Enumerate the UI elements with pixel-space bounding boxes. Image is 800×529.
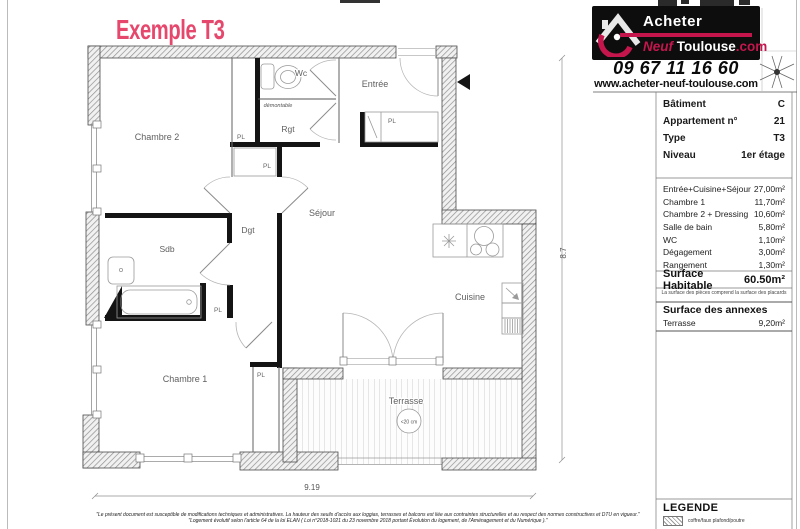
area-label: Salle de bain bbox=[663, 222, 712, 232]
logo-red-bar bbox=[620, 33, 752, 37]
website-url: www.acheter-neuf-toulouse.com bbox=[588, 78, 764, 90]
phone-number: 09 67 11 16 60 bbox=[592, 58, 760, 79]
width-dimension-label: 9.19 bbox=[304, 483, 320, 492]
kitchen-fixtures bbox=[433, 224, 523, 334]
info-value: 21 bbox=[774, 116, 785, 127]
legend-item-label: coffre/faux plafond/poutre bbox=[688, 518, 745, 524]
area-value: 1,30m² bbox=[759, 260, 785, 270]
area-value: 1,10m² bbox=[759, 235, 785, 245]
table-row: Salle de bain 5,80m² bbox=[656, 221, 792, 234]
info-label: Bâtiment bbox=[663, 99, 706, 110]
room-label-wc: Wc bbox=[295, 68, 308, 78]
terrace-note-text: <20 cm bbox=[401, 420, 418, 426]
info-value: C bbox=[778, 99, 785, 110]
closet-label: PL bbox=[388, 118, 396, 125]
compass-icon bbox=[760, 56, 794, 88]
total-value: 60.50m² bbox=[744, 274, 785, 286]
table-row: Bâtiment C bbox=[656, 96, 792, 113]
area-value: 27,00m² bbox=[754, 184, 785, 194]
legend-item: coffre/faux plafond/poutre bbox=[663, 516, 745, 526]
info-label: Type bbox=[663, 133, 686, 144]
area-label: Chambre 1 bbox=[663, 197, 705, 207]
table-row: Entrée+Cuisine+Séjour 27,00m² bbox=[656, 183, 792, 196]
info-value: T3 bbox=[773, 133, 785, 144]
room-label-terrasse: Terrasse bbox=[389, 396, 424, 406]
closet-label: PL bbox=[263, 163, 271, 170]
windows bbox=[92, 121, 242, 462]
table-row: Niveau 1er étage bbox=[656, 147, 792, 164]
logo-text-neuf: Neuf bbox=[643, 39, 673, 54]
terrace-threshold-note: <20 cm bbox=[397, 409, 421, 433]
surface-habitable-row: Surface Habitable 60.50m² bbox=[656, 271, 792, 288]
area-value: 3,00m² bbox=[759, 247, 785, 257]
room-label-sdb: Sdb bbox=[159, 244, 174, 254]
annex-label: Terrasse bbox=[663, 318, 696, 328]
apartment-info-table: Bâtiment C Appartement n° 21 Type T3 Niv… bbox=[656, 96, 792, 164]
room-label-chambre2: Chambre 2 bbox=[135, 132, 180, 142]
closet-label: PL bbox=[257, 372, 265, 379]
room-label-cuisine: Cuisine bbox=[455, 292, 485, 302]
room-label-rgt: Rgt bbox=[281, 124, 295, 134]
room-label-entree: Entrée bbox=[362, 79, 389, 89]
area-label: WC bbox=[663, 235, 677, 245]
area-value: 5,80m² bbox=[759, 222, 785, 232]
room-labels: Chambre 2 Wc Entrée Rgt Dgt Séjour Sdb C… bbox=[135, 68, 485, 406]
area-label: Chambre 2 + Dressing bbox=[663, 209, 748, 219]
table-row: Chambre 1 11,70m² bbox=[656, 196, 792, 209]
logo-text-com: .com bbox=[736, 39, 768, 54]
table-row: Dégagement 3,00m² bbox=[656, 246, 792, 259]
logo-text-line2: Neuf Toulouse.com bbox=[643, 39, 767, 54]
total-label: Surface Habitable bbox=[663, 268, 744, 292]
room-label-dgt: Dgt bbox=[241, 225, 255, 235]
table-row: Terrasse 9,20m² bbox=[656, 318, 792, 328]
annex-value: 9,20m² bbox=[759, 318, 785, 328]
area-label: Dégagement bbox=[663, 247, 712, 257]
annexes-header: Surface des annexes bbox=[656, 304, 792, 316]
room-areas-table: Entrée+Cuisine+Séjour 27,00m² Chambre 1 … bbox=[656, 179, 792, 271]
table-row: WC 1,10m² bbox=[656, 233, 792, 246]
room-label-sejour: Séjour bbox=[309, 208, 335, 218]
area-value: 10,60m² bbox=[754, 209, 785, 219]
closet-label: PL bbox=[237, 134, 245, 141]
disclaimer-line2: "Logement évolutif selon l'article 64 de… bbox=[62, 518, 674, 524]
height-dimension-label: 8.7 bbox=[559, 247, 568, 259]
doors bbox=[200, 49, 443, 366]
washbasin-fixture bbox=[108, 257, 134, 284]
table-row: Type T3 bbox=[656, 130, 792, 147]
logo-text-toulouse: Toulouse bbox=[677, 39, 736, 54]
table-row: Appartement n° 21 bbox=[656, 113, 792, 130]
info-label: Niveau bbox=[663, 150, 696, 161]
table-row: Chambre 2 + Dressing 10,60m² bbox=[656, 208, 792, 221]
bathtub-fixture bbox=[117, 286, 201, 318]
areas-note: La surface des pièces comprend la surfac… bbox=[656, 290, 792, 296]
entrance-arrow-icon bbox=[457, 74, 470, 90]
demountable-partition-label: démontable bbox=[264, 103, 293, 109]
logo-text-acheter: Acheter bbox=[643, 13, 702, 30]
disclaimer-text: "Le présent document est susceptible de … bbox=[62, 512, 674, 524]
closet-label: PL bbox=[214, 307, 222, 314]
area-label: Entrée+Cuisine+Séjour bbox=[663, 184, 751, 194]
info-label: Appartement n° bbox=[663, 116, 738, 127]
area-value: 11,70m² bbox=[754, 197, 785, 207]
info-value: 1er étage bbox=[741, 150, 785, 161]
room-label-chambre1: Chambre 1 bbox=[163, 374, 208, 384]
page-title: Exemple T3 bbox=[116, 14, 224, 46]
agency-logo: Acheter Neuf Toulouse.com bbox=[592, 6, 760, 60]
